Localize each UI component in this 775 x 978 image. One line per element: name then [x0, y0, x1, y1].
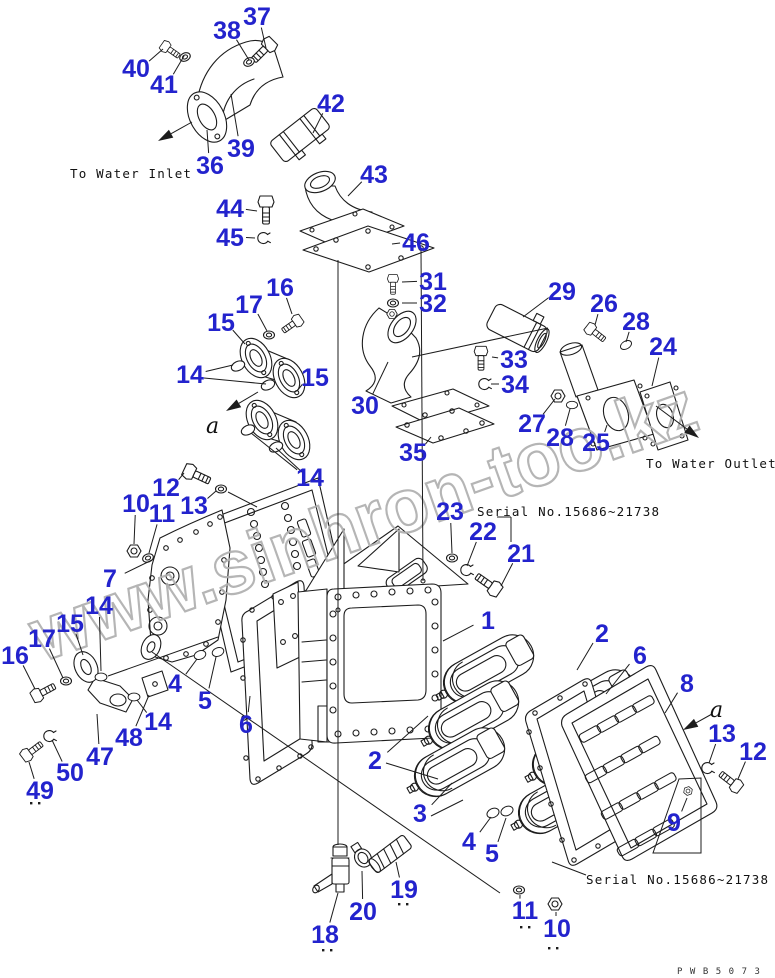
leader-line [431, 800, 463, 816]
callout-13: 13 [180, 492, 208, 520]
callout-10: 10 [543, 915, 571, 943]
bolt-21 [472, 570, 504, 599]
callout-19: 19 [390, 876, 418, 904]
callout-17: 17 [28, 625, 56, 653]
snap-ring-50 [44, 731, 57, 742]
callout-38: 38 [213, 17, 241, 45]
plate-48 [142, 671, 168, 697]
callout-43: 43 [360, 161, 388, 189]
leader-13 [207, 491, 216, 499]
callout-23: 23 [436, 498, 464, 526]
annotation-serial-bottom: Serial No.15686~21738 [586, 872, 769, 887]
plug-5 [211, 646, 225, 658]
bolt-31 [387, 275, 398, 295]
leader-5 [209, 657, 216, 688]
callout-48: 48 [115, 724, 143, 752]
callout-24: 24 [649, 333, 677, 361]
callout-16: 16 [1, 642, 29, 670]
callout-47: 47 [86, 743, 114, 771]
callout-42: 42 [317, 90, 345, 118]
callout-14: 14 [176, 361, 204, 389]
callout-14: 14 [85, 592, 113, 620]
callout-8: 8 [680, 670, 694, 698]
leader-1 [443, 625, 474, 641]
snap-ring-22 [461, 565, 474, 576]
nut-27 [551, 390, 565, 402]
leader-33 [492, 357, 498, 358]
plug-5b [499, 804, 514, 817]
annotation-drawing-code: PWB5073 [677, 967, 767, 977]
callout-4: 4 [168, 670, 182, 698]
washer-11b [514, 886, 525, 894]
snap-ring-34 [479, 379, 492, 390]
bolt-33 [474, 346, 488, 370]
snap-ring-13b [702, 763, 715, 774]
callout-2: 2 [368, 747, 382, 775]
callout-45: 45 [216, 224, 244, 252]
callout-25: 25 [582, 429, 610, 457]
leader-14 [206, 365, 233, 372]
reference-dot [330, 949, 332, 951]
reference-dot [398, 903, 400, 905]
callout-40: 40 [122, 55, 150, 83]
reference-dot [520, 926, 522, 928]
view-a-arrow-2-head [683, 719, 698, 730]
inlet-direction-arrow-head [158, 130, 173, 141]
callout-49: 49 [26, 777, 54, 805]
leader-44 [246, 209, 257, 211]
leader-4 [480, 817, 491, 832]
callout-11: 11 [149, 500, 176, 528]
callout-5: 5 [198, 687, 212, 715]
callout-17: 17 [235, 291, 263, 319]
callout-35: 35 [399, 439, 427, 467]
callout-6: 6 [633, 642, 647, 670]
bolt-49 [19, 738, 46, 763]
callout-3: 3 [413, 800, 427, 828]
annotation-to-water-outlet: To Water Outlet [646, 456, 775, 471]
callout-50: 50 [56, 759, 84, 787]
callout-4: 4 [462, 828, 476, 856]
water-pipe-30 [362, 306, 489, 424]
callout-14: 14 [296, 464, 324, 492]
nut-10b [548, 898, 562, 910]
plug-4b [485, 806, 500, 819]
reference-dot [556, 947, 558, 949]
callout-11: 11 [512, 897, 539, 925]
washer-13 [216, 485, 227, 493]
leader-45 [246, 237, 255, 238]
callout-39: 39 [227, 135, 255, 163]
washer-32 [388, 299, 399, 307]
callout-7: 7 [103, 565, 117, 593]
callout-34: 34 [501, 371, 529, 399]
leader-4 [186, 659, 197, 674]
callout-30: 30 [351, 392, 379, 420]
water-flange-pair-upper [234, 333, 311, 403]
annotation-view-a-2: a [710, 698, 723, 723]
callout-15: 15 [301, 364, 329, 392]
callout-32: 32 [419, 290, 447, 318]
washer-23 [447, 554, 458, 562]
callout-15: 15 [207, 309, 235, 337]
callout-37: 37 [243, 3, 271, 31]
washer-17b [61, 677, 72, 685]
callout-29: 29 [548, 278, 576, 306]
reference-dot [30, 802, 32, 804]
bolt-16b [29, 680, 58, 705]
snap-ring-45 [258, 233, 271, 244]
leader-line [204, 378, 266, 384]
leader-line [228, 492, 257, 507]
callout-41: 41 [150, 71, 178, 99]
callout-16: 16 [266, 274, 294, 302]
inlet-direction-arrow [171, 122, 192, 134]
callout-13: 13 [708, 720, 736, 748]
callout-5: 5 [485, 840, 499, 868]
parts-diagram-page: www.sinhron-too.kz 373840414239364344454… [0, 0, 775, 978]
callout-21: 21 [507, 540, 535, 568]
callout-36: 36 [196, 152, 224, 180]
bolt-16a [279, 313, 305, 336]
callout-14: 14 [144, 708, 172, 736]
callout-18: 18 [311, 921, 339, 949]
diagram-canvas: www.sinhron-too.kz 373840414239364344454… [0, 0, 775, 978]
callout-12: 12 [152, 474, 180, 502]
callout-22: 22 [469, 518, 497, 546]
callout-6: 6 [239, 711, 253, 739]
bolt-44 [258, 196, 274, 224]
annotation-serial-top: Serial No.15686~21738 [477, 504, 660, 519]
hose-19 [367, 834, 412, 874]
callout-12: 12 [739, 738, 767, 766]
washer-17a [264, 331, 275, 339]
leader-40 [149, 49, 163, 61]
washer-41 [178, 51, 191, 63]
reference-dot [38, 802, 40, 804]
bolt-12 [181, 462, 213, 488]
callout-27: 27 [518, 410, 546, 438]
leader-10 [134, 515, 135, 544]
leader-18 [330, 893, 338, 923]
leader-line [552, 862, 586, 875]
o-ring-14f [95, 673, 107, 681]
reference-dot [548, 947, 550, 949]
leader-20 [362, 871, 363, 899]
callout-15: 15 [56, 610, 84, 638]
callout-1: 1 [481, 607, 495, 635]
callout-2: 2 [595, 620, 609, 648]
leader-2 [577, 643, 593, 670]
callout-10: 10 [122, 490, 150, 518]
annotation-to-water-inlet: To Water Inlet [70, 166, 192, 181]
drain-valve-18 [311, 844, 349, 894]
callout-26: 26 [590, 290, 618, 318]
leader-5 [498, 818, 506, 842]
o-ring-14e [128, 693, 140, 701]
leader-31 [402, 281, 417, 282]
reference-dot [322, 949, 324, 951]
callout-44: 44 [216, 195, 244, 223]
callout-28: 28 [622, 308, 650, 336]
view-a-arrow-1-head [226, 399, 241, 411]
reference-dot [528, 926, 530, 928]
annotation-view-a-1: a [206, 414, 219, 439]
callout-46: 46 [402, 229, 430, 257]
callout-33: 33 [500, 346, 528, 374]
callout-20: 20 [349, 898, 377, 926]
leader-47 [97, 714, 99, 744]
reference-dot [406, 903, 408, 905]
callout-9: 9 [667, 809, 681, 837]
callout-28: 28 [546, 424, 574, 452]
